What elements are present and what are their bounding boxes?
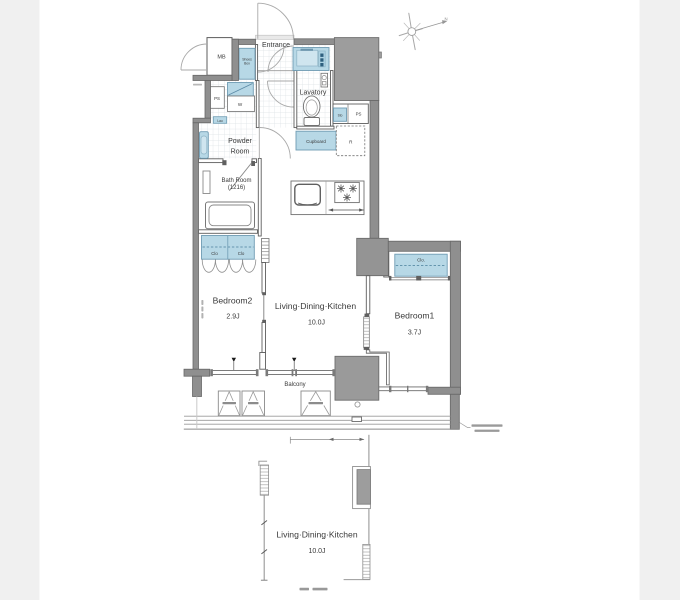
- svg-text:Bedroom2: Bedroom2: [213, 296, 253, 306]
- svg-text:3.7J: 3.7J: [408, 330, 421, 337]
- svg-text:PS: PS: [356, 112, 362, 117]
- svg-text:Cupboard: Cupboard: [306, 139, 326, 144]
- svg-text:10.0J: 10.0J: [308, 320, 325, 327]
- svg-text:Powder: Powder: [228, 138, 252, 145]
- svg-text:Box: Box: [244, 62, 250, 66]
- svg-text:Living·Dining·Kitchen: Living·Dining·Kitchen: [276, 530, 357, 540]
- svg-text:Room: Room: [231, 149, 250, 156]
- svg-text:(1216): (1216): [228, 185, 245, 191]
- svg-text:N: N: [444, 16, 447, 21]
- svg-text:Clo: Clo: [238, 251, 245, 256]
- svg-text:Lau: Lau: [217, 119, 223, 123]
- svg-text:Bedroom1: Bedroom1: [395, 311, 435, 321]
- svg-text:Clo: Clo: [211, 251, 218, 256]
- svg-text:Bath Room: Bath Room: [221, 178, 251, 184]
- svg-text:Sto: Sto: [338, 113, 343, 117]
- svg-text:Entrance: Entrance: [262, 42, 290, 49]
- svg-text:Balcony: Balcony: [284, 382, 305, 388]
- svg-text:Living·Dining·Kitchen: Living·Dining·Kitchen: [275, 301, 356, 311]
- svg-text:Lavatory: Lavatory: [300, 90, 327, 97]
- svg-text:W: W: [238, 102, 243, 107]
- svg-text:2.9J: 2.9J: [226, 314, 239, 321]
- svg-text:Clo.: Clo.: [417, 257, 425, 262]
- svg-text:MB: MB: [217, 55, 226, 61]
- svg-text:PS: PS: [214, 96, 220, 101]
- svg-text:10.0J: 10.0J: [308, 548, 325, 555]
